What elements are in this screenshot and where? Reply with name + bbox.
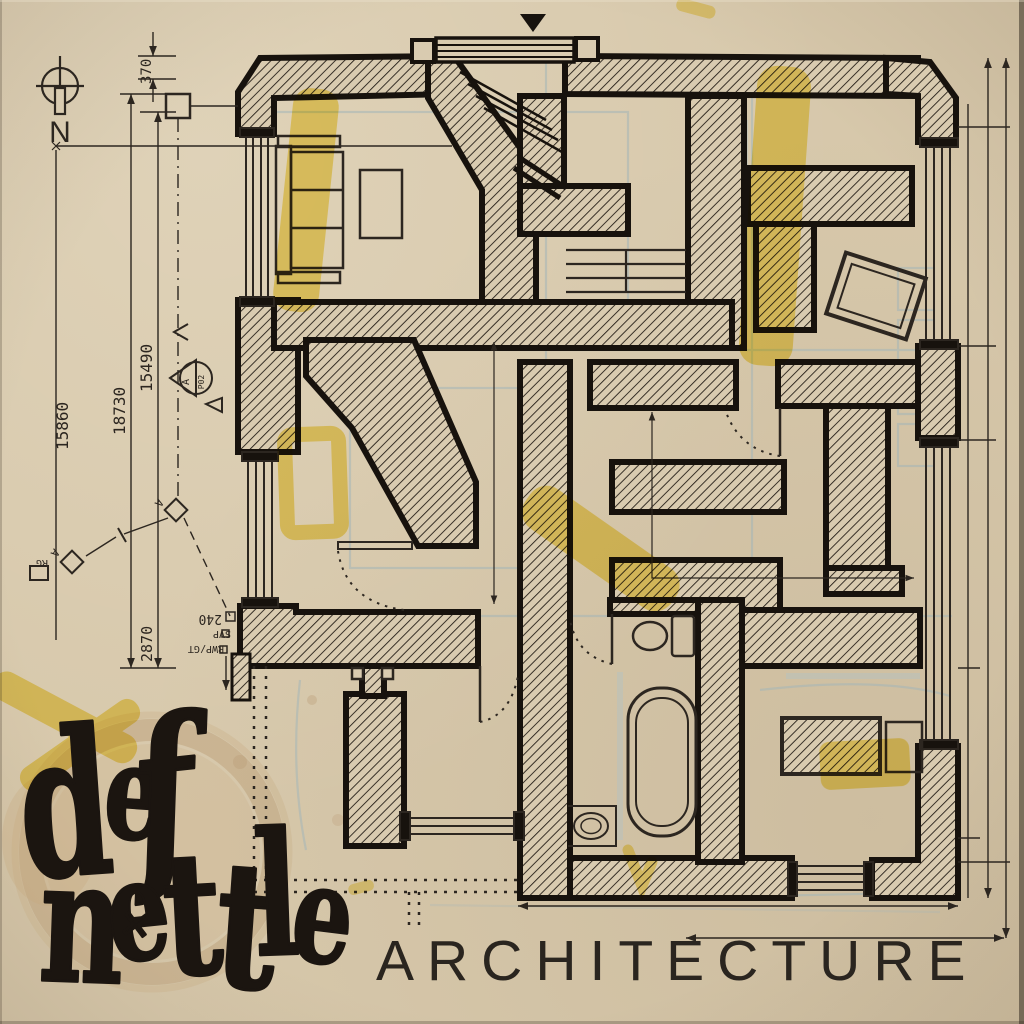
bathtub-icon	[628, 688, 696, 836]
dim-370: 370	[139, 59, 155, 84]
wall-bar-1	[590, 362, 736, 408]
north-label: N	[49, 116, 71, 149]
floorplan-artwork: 370 15490 18730 15860 2870 240 SVP RWP/G…	[0, 0, 1024, 1024]
highlight-stroke	[675, 0, 717, 20]
highlight-sofa	[271, 86, 340, 314]
coffee-table-icon	[360, 170, 402, 238]
section-letter: A	[181, 379, 192, 385]
diamond-label: A	[152, 496, 167, 509]
entry-arrow-icon	[520, 14, 546, 32]
door-post	[382, 668, 393, 679]
wall-bedroom-band	[740, 610, 920, 666]
rwp-diamond	[61, 551, 84, 574]
dim-18730: 18730	[110, 387, 129, 435]
diamond-label: A	[48, 546, 63, 559]
label-rwp: RWP/GT	[188, 643, 224, 654]
dim-15860: 15860	[53, 402, 72, 450]
wall-right-pier	[918, 346, 958, 438]
title-text: ARCHITECTURE	[376, 929, 979, 993]
album-cover: 370 15490 18730 15860 2870 240 SVP RWP/G…	[0, 0, 1024, 1024]
drainage-symbols: A A RG	[30, 496, 235, 653]
window-right-2	[920, 438, 958, 749]
logo: d e f n e t t l e ✕	[11, 671, 363, 1024]
dimension-labels: 370 15490 18730 15860 2870 240 SVP RWP/G…	[53, 59, 231, 662]
stairs	[566, 250, 686, 292]
wall-bar-2	[612, 462, 784, 512]
window-wing	[400, 812, 524, 840]
canopy-post	[576, 38, 598, 60]
stain-spot	[332, 814, 344, 826]
wall-central-vertical	[520, 362, 570, 898]
logo-cross-mark: ✕	[117, 900, 155, 949]
flow-arrow-icon	[206, 398, 222, 412]
north-arrow: N	[36, 56, 84, 149]
wall-t-foot	[826, 568, 902, 594]
gully-label: RG	[36, 557, 48, 568]
stain-spot	[233, 755, 247, 769]
window-left-1	[240, 128, 274, 306]
wall-e-arm	[520, 186, 628, 234]
door-bathroom	[570, 614, 612, 664]
wall-top-right-corner	[886, 58, 956, 142]
wall-bathroom-right	[698, 600, 742, 862]
wall-top-left	[238, 56, 452, 134]
tilted-table-icon	[826, 253, 926, 340]
rwp-diamond	[165, 499, 188, 522]
window-left-2	[242, 452, 278, 607]
window-bottom	[788, 862, 873, 896]
window-right-1	[920, 138, 958, 349]
section-ref: P02	[197, 375, 206, 390]
dim-15490: 15490	[137, 344, 156, 392]
wall-pillar-neck	[362, 666, 384, 696]
toilet-icon	[633, 616, 694, 656]
dim-2870: 2870	[138, 626, 156, 662]
wall-pillar	[346, 694, 404, 846]
sink-icon	[568, 806, 616, 846]
wall-t-bar	[778, 362, 918, 406]
canopy-post	[412, 40, 434, 62]
highlight-bed	[819, 738, 911, 791]
wall-t-stem	[826, 406, 888, 568]
rwp-block	[232, 654, 250, 700]
stain-spot	[307, 695, 317, 705]
door-hall	[480, 666, 518, 722]
door-post	[352, 668, 363, 679]
wall-left-bottom-band	[240, 606, 478, 666]
dim-240: 240	[199, 611, 222, 626]
chevron-icon	[174, 324, 188, 340]
wall-top-right-band	[565, 56, 918, 96]
svp-square	[226, 612, 235, 621]
